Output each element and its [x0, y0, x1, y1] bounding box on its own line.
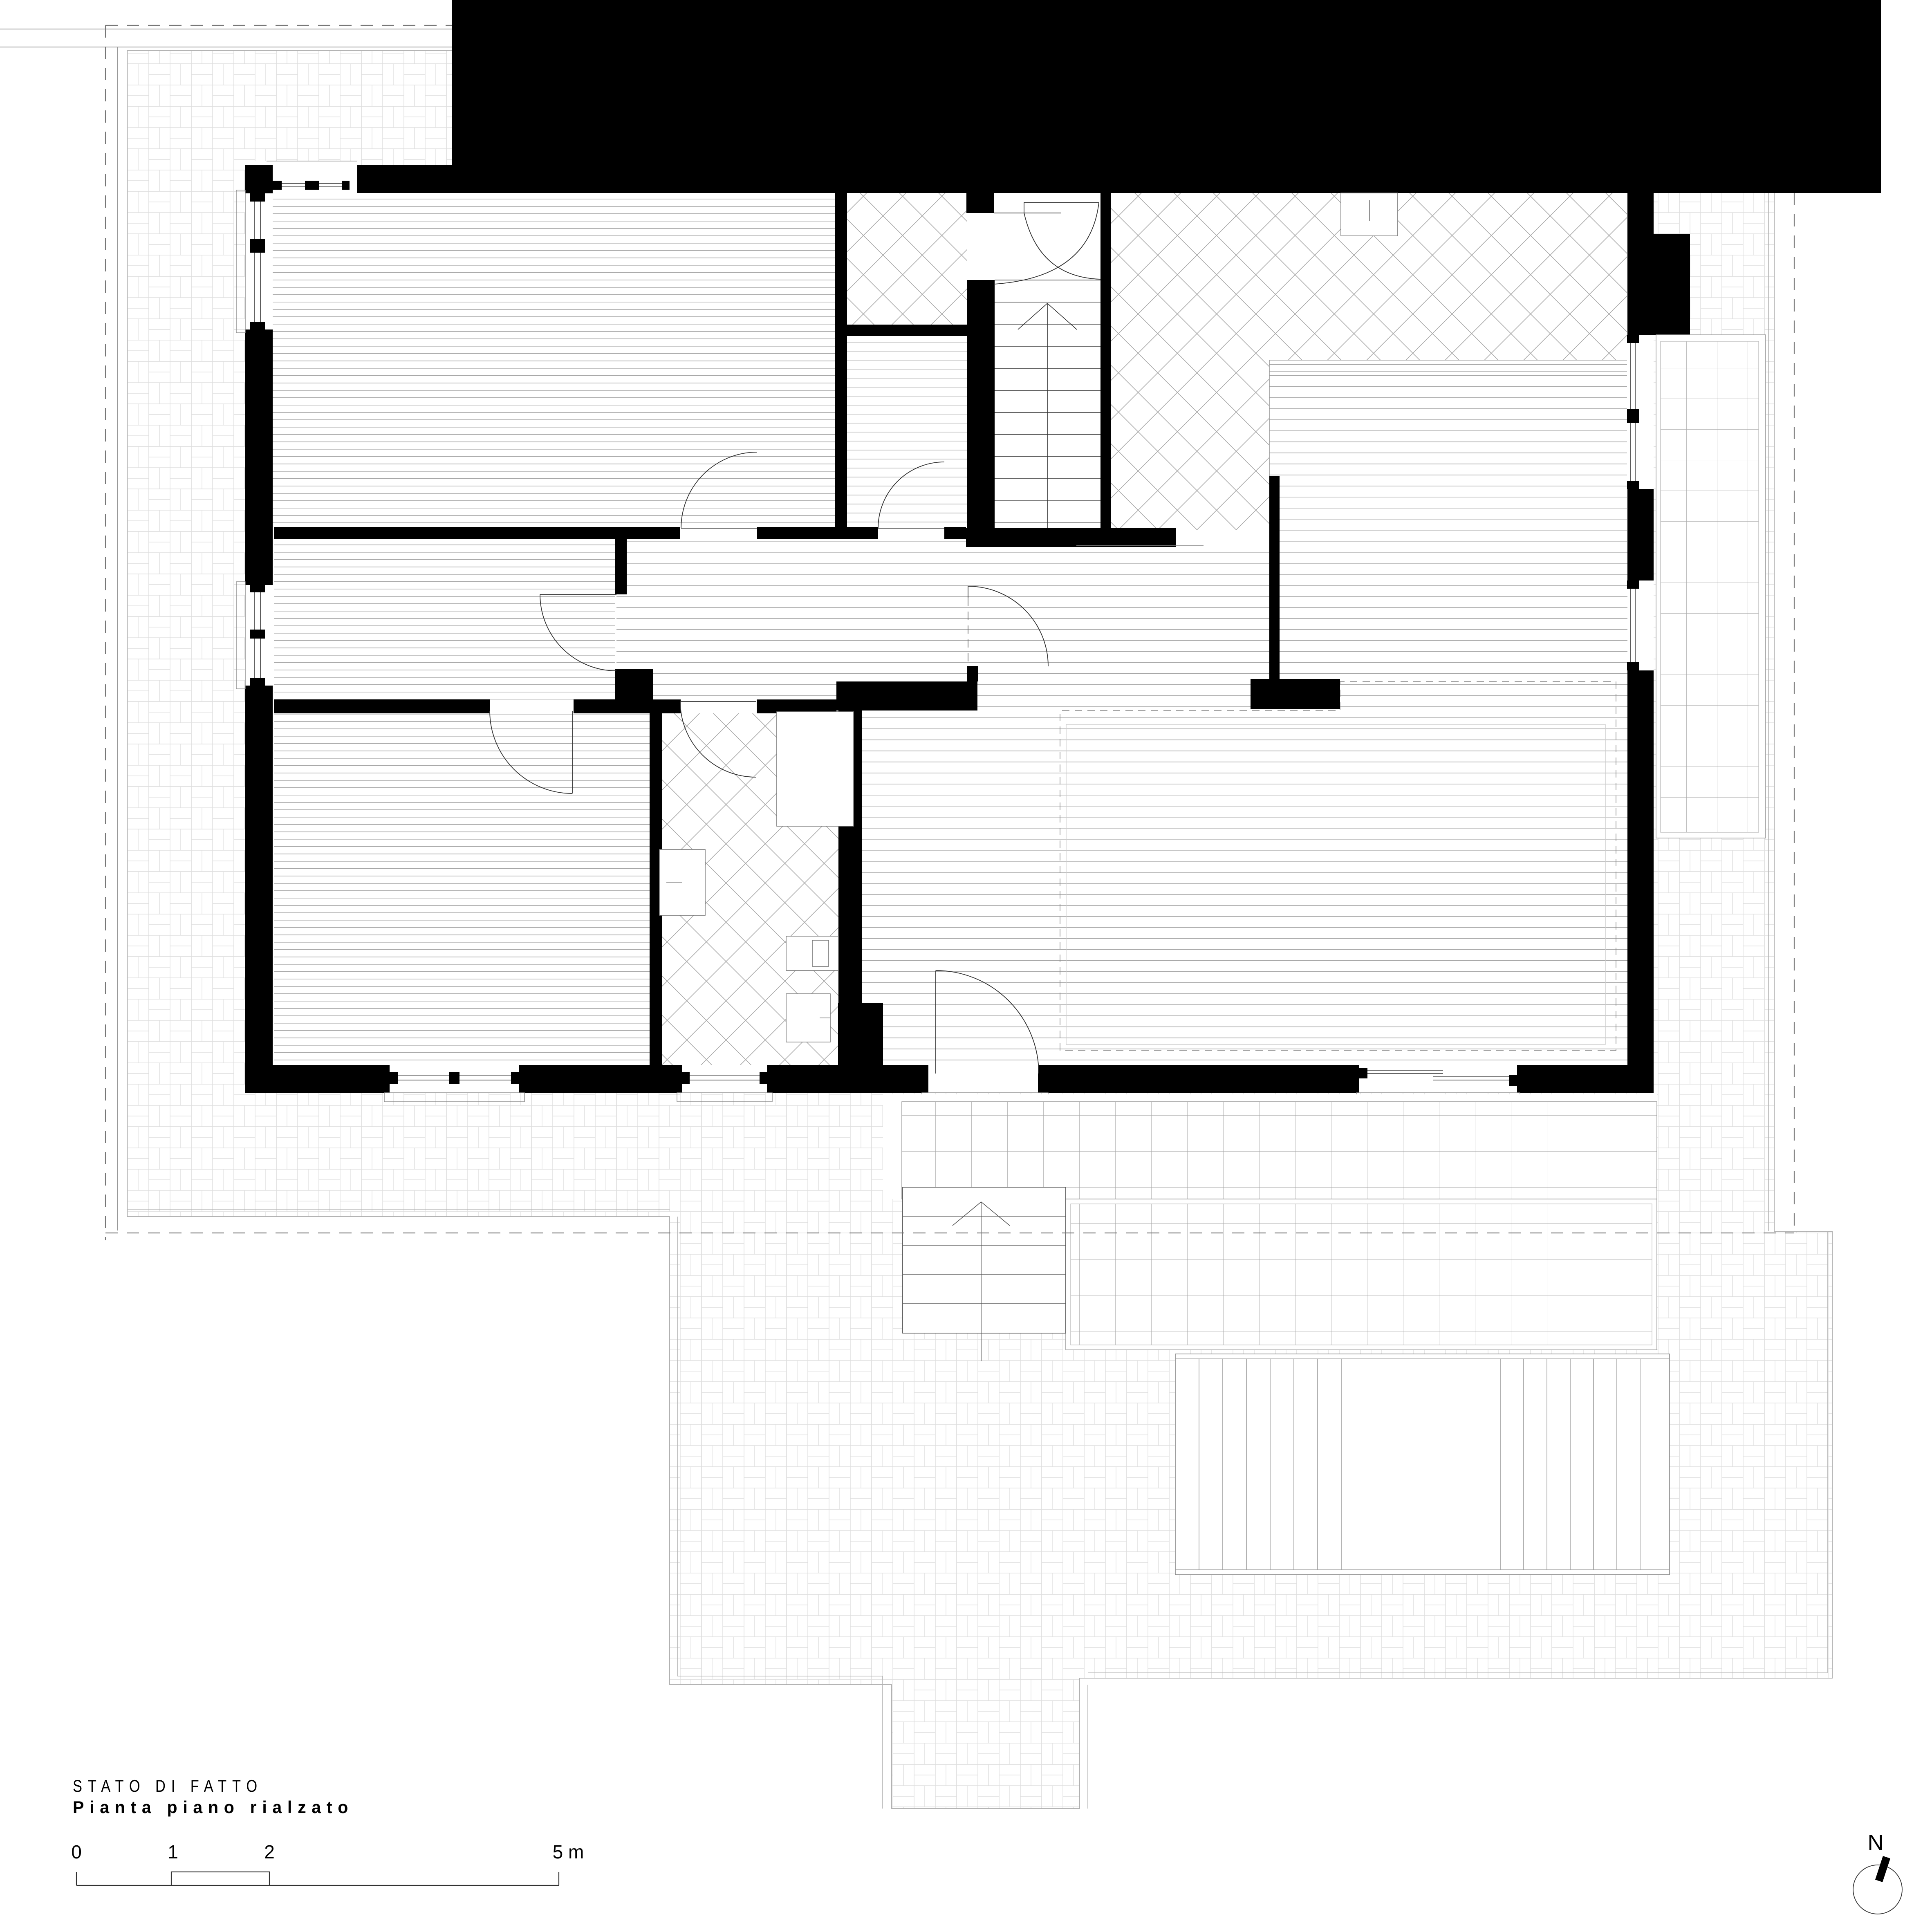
svg-text:N: N — [1868, 1830, 1884, 1855]
svg-text:0: 0 — [71, 1841, 82, 1863]
svg-text:STATO DI FATTO: STATO DI FATTO — [73, 1776, 263, 1795]
svg-text:5 m: 5 m — [553, 1841, 584, 1863]
svg-text:2: 2 — [264, 1841, 275, 1863]
svg-text:Pianta piano rialzato: Pianta piano rialzato — [73, 1798, 354, 1817]
svg-text:1: 1 — [168, 1841, 178, 1863]
